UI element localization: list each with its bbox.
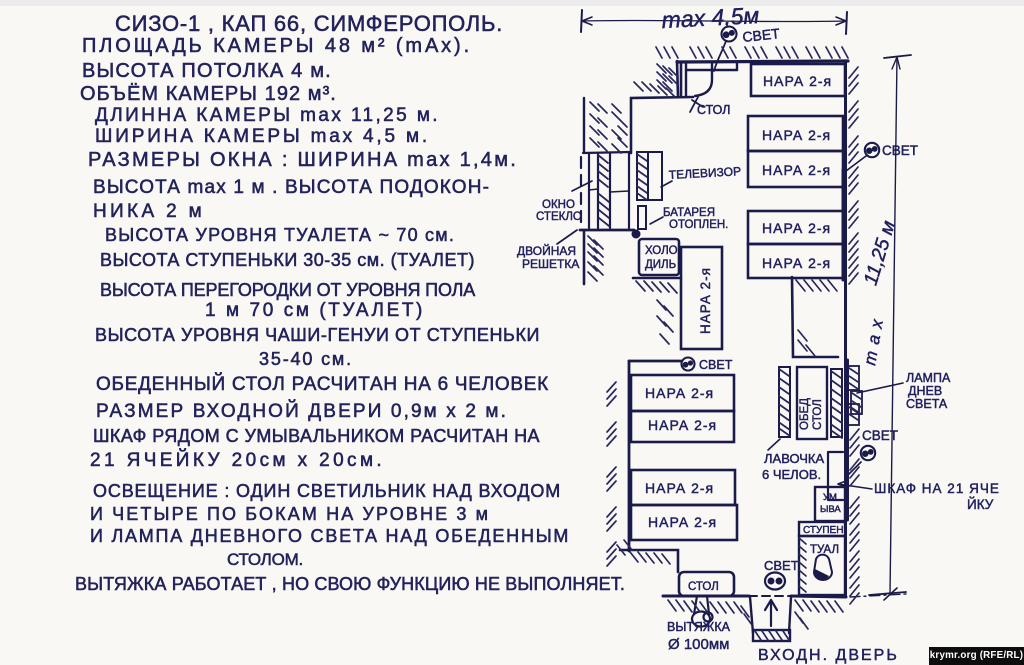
svg-text:ВЫТЯЖКА: ВЫТЯЖКА (667, 620, 731, 634)
svg-text:НАРА 2-я: НАРА 2-я (645, 480, 714, 496)
svg-text:НАРА 2-я: НАРА 2-я (648, 514, 717, 530)
svg-text:ЫВА: ЫВА (820, 504, 841, 515)
svg-text:ШКАФ НА 21 ЯЧЕ: ШКАФ НА 21 ЯЧЕ (874, 481, 1000, 496)
svg-text:ОКНО: ОКНО (542, 199, 575, 211)
svg-text:НАРА 2-я: НАРА 2-я (763, 73, 832, 89)
svg-text:ОБЕД: ОБЕД (799, 398, 811, 430)
svg-text:НАРА 2-я: НАРА 2-я (762, 255, 831, 271)
svg-text:РЕШЕТКА: РЕШЕТКА (522, 257, 579, 271)
svg-text:ТЕЛЕВИЗОР: ТЕЛЕВИЗОР (668, 164, 741, 182)
svg-text:ЙКУ: ЙКУ (967, 497, 994, 512)
svg-text:УМ: УМ (823, 492, 837, 503)
svg-text:НАРА 2-я: НАРА 2-я (698, 267, 713, 334)
svg-text:Ø 100мм: Ø 100мм (668, 636, 730, 653)
svg-text:БАТАРЕЯ: БАТАРЕЯ (663, 207, 715, 219)
svg-text:max: max (860, 311, 888, 367)
svg-text:СТОЛ: СТОЛ (697, 103, 730, 117)
svg-text:НАРА 2-я: НАРА 2-я (762, 220, 831, 236)
svg-text:ОТОПЛЕН.: ОТОПЛЕН. (669, 219, 728, 231)
svg-text:НАРА 2-я: НАРА 2-я (645, 385, 714, 401)
svg-text:ДВОЙНАЯ: ДВОЙНАЯ (517, 243, 576, 258)
svg-text:ХОЛО: ХОЛО (645, 245, 678, 257)
svg-text:ЛАМПА: ЛАМПА (906, 371, 951, 385)
svg-text:НАРА 2-я: НАРА 2-я (648, 417, 717, 433)
svg-text:НАРА 2-я: НАРА 2-я (762, 127, 831, 143)
svg-text:СТОЛ: СТОЛ (688, 581, 719, 593)
svg-text:6 ЧЕЛОВ.: 6 ЧЕЛОВ. (762, 467, 821, 482)
svg-text:ЛАВОЧКА: ЛАВОЧКА (764, 451, 825, 466)
svg-text:НАРА 2-я: НАРА 2-я (762, 162, 831, 178)
svg-text:СТОЛ: СТОЛ (812, 399, 824, 430)
svg-text:ВХОДН. ДВЕРЬ: ВХОДН. ДВЕРЬ (758, 647, 899, 664)
svg-text:СТЕКЛО: СТЕКЛО (536, 211, 582, 223)
svg-text:СВЕТА: СВЕТА (906, 397, 948, 411)
svg-text:ДНЕВ: ДНЕВ (908, 384, 942, 398)
svg-text:СВЕТ: СВЕТ (882, 143, 918, 158)
svg-text:ДИЛЬ: ДИЛЬ (645, 259, 676, 271)
svg-text:СВЕТ: СВЕТ (764, 558, 799, 573)
svg-text:ТУАЛ: ТУАЛ (810, 544, 839, 556)
svg-text:СВЕТ: СВЕТ (742, 25, 781, 45)
svg-text:СВЕТ: СВЕТ (699, 358, 733, 372)
svg-text:СТУПЕН: СТУПЕН (803, 525, 843, 536)
